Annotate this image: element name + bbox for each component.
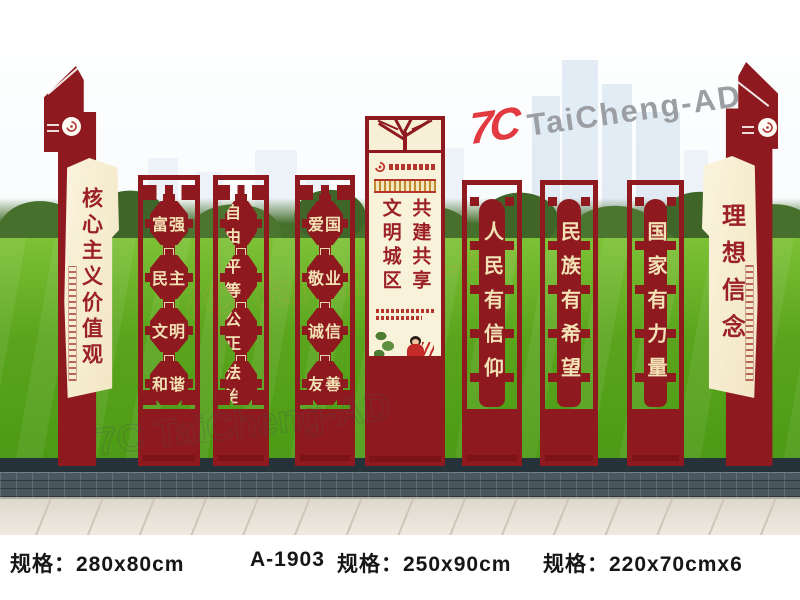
brick-wall [0,472,800,497]
value-word: 平等 [225,253,257,301]
lattice-lintel [143,390,195,405]
left-flag-title: 核心主义价值观 [76,187,106,369]
lattice-crown [369,120,441,153]
slogan-panel-guojia: 国家有力量 [627,180,684,466]
panel-base [632,409,679,461]
center-slogan-right: 共建共享 [406,198,433,306]
meander-pattern-strip [745,265,754,381]
panel-base [545,409,593,461]
value-word: 民主 [152,265,186,289]
slogan-text: 人民有信仰 [478,215,507,391]
fine-print-line [376,316,422,320]
paved-sidewalk [0,497,800,535]
tc-logo-mark-icon: 7C [469,98,517,155]
slogan-panel-minzu: 民族有希望 [540,180,598,466]
slogan-text: 国家有力量 [641,215,670,391]
right-flag-banner: 理想信念 [702,156,760,398]
left-flag-banner: 核心主义价值观 [62,158,119,398]
value-word: 诚信 [308,318,342,342]
swirl-logo-icon [758,118,777,137]
fine-print-line [376,309,434,313]
decorative-border-band [374,179,436,193]
spec-model-number: A-1903 [250,548,325,572]
right-flag-title: 理想信念 [714,203,749,351]
center-board-face: 文明城区 共建共享 [369,153,441,364]
value-word: 富强 [152,211,186,235]
spec-center-board: 规格：250x90cm [337,548,511,578]
spec-left-board: 规格：280x80cm [10,548,184,578]
center-slogan-left: 文明城区 [377,198,404,306]
small-title-bar [389,164,436,170]
slogan-panel-renmin: 人民有信仰 [462,180,522,466]
swirl-logo-icon [374,161,386,173]
value-word: 公正 [225,306,257,354]
spec-caption-row: 规格：280x80cm A-1903 规格：250x90cm 规格：220x70… [0,548,800,588]
swirl-logo-icon [62,117,81,136]
value-word: 文明 [152,318,186,342]
panel-base [467,409,517,461]
spec-panels: 规格：220x70cmx6 [543,548,743,578]
outdoor-signage-scene: 7CTaiCheng-AD 7C TaiCheng-AD 核心主义价值观 富强 … [0,0,800,535]
slogan-text: 民族有希望 [555,215,584,391]
meander-pattern-strip [68,266,77,381]
value-word: 自由 [225,199,257,247]
value-word: 敬业 [308,265,342,289]
value-word: 爱国 [308,211,342,235]
